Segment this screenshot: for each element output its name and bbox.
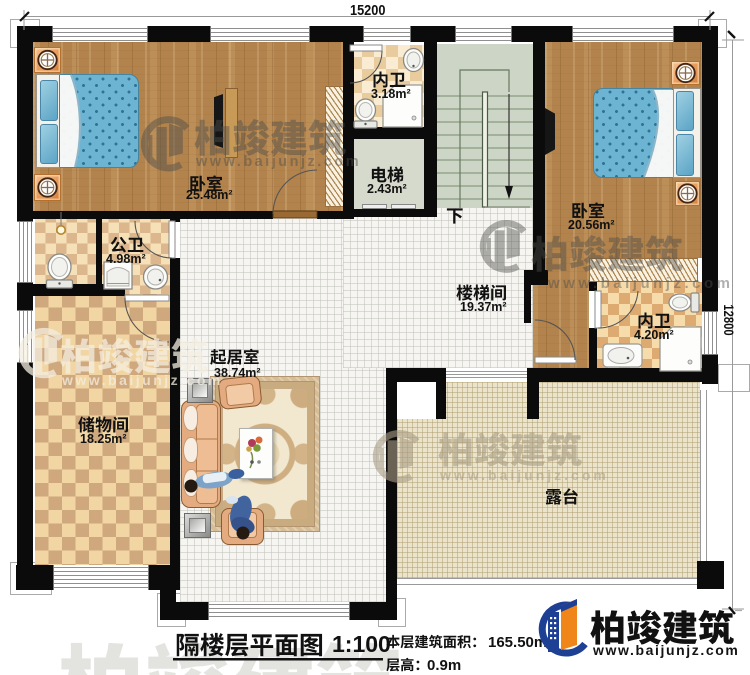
svg-text:www.baijunjz.com: www.baijunjz.com	[439, 467, 609, 483]
svg-text:www.baijunjz.com: www.baijunjz.com	[195, 154, 361, 170]
svg-text:www.baijunjz.com: www.baijunjz.com	[547, 275, 733, 292]
svg-text:0.9m: 0.9m	[427, 657, 461, 674]
svg-text:www.baijunjz.com: www.baijunjz.com	[592, 642, 739, 658]
svg-text:1:100: 1:100	[332, 631, 391, 657]
svg-text:www.baijunjz.com: www.baijunjz.com	[61, 372, 223, 388]
